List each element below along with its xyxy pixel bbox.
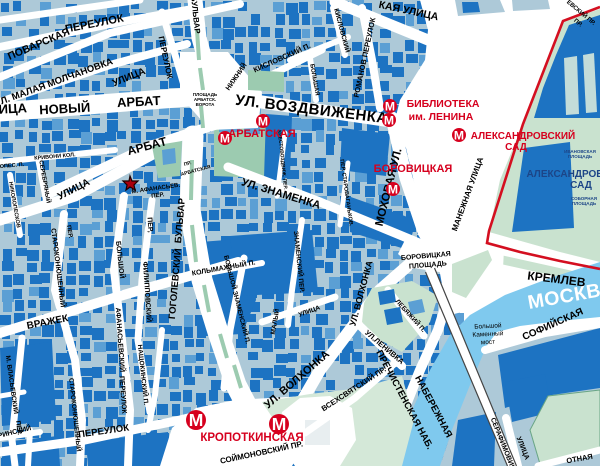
svg-text:ПЛОЩАДЬ: ПЛОЩАДЬ: [572, 201, 597, 206]
svg-text:БОРОВИЦКАЯ: БОРОВИЦКАЯ: [374, 163, 453, 175]
svg-text:ВОРОТА: ВОРОТА: [196, 102, 216, 107]
svg-text:БИБЛИОТЕКА: БИБЛИОТЕКА: [407, 98, 480, 110]
svg-text:ПЛОЩАДЬ: ПЛОЩАДЬ: [568, 154, 593, 159]
svg-text:АРБАТСКАЯ: АРБАТСКАЯ: [228, 128, 295, 140]
svg-text:ПЕР,: ПЕР,: [145, 217, 153, 233]
svg-text:Каменный: Каменный: [472, 329, 504, 339]
svg-text:М: М: [189, 410, 204, 430]
svg-text:М: М: [258, 114, 268, 128]
svg-text:М: М: [385, 99, 395, 113]
svg-text:АЛЕКСАНДРОВСКИЙ: АЛЕКСАНДРОВСКИЙ: [471, 129, 575, 142]
svg-text:М: М: [388, 182, 398, 196]
svg-text:САД: САД: [570, 180, 592, 191]
svg-text:ИЦА: ИЦА: [0, 100, 28, 116]
svg-text:Большой: Большой: [474, 321, 502, 330]
svg-text:АЛЕКСАНДРОВ: АЛЕКСАНДРОВ: [526, 169, 600, 180]
svg-text:мост: мост: [481, 339, 496, 347]
svg-text:НОВЫЙ: НОВЫЙ: [39, 100, 91, 118]
svg-text:М: М: [384, 113, 394, 127]
svg-text:КРОПОТКИНСКАЯ: КРОПОТКИНСКАЯ: [200, 432, 303, 444]
svg-text:АРБАТ: АРБАТ: [117, 93, 161, 110]
svg-text:им. ЛЕНИНА: им. ЛЕНИНА: [409, 111, 474, 123]
svg-text:М: М: [454, 128, 464, 142]
svg-text:САД: САД: [505, 142, 527, 153]
